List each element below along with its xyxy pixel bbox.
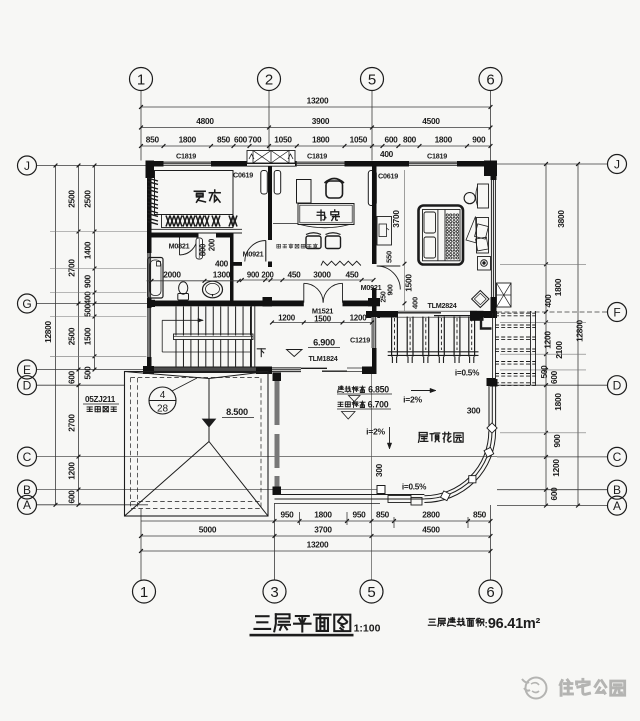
svg-text:M0921: M0921	[361, 283, 382, 292]
svg-text:950: 950	[352, 510, 366, 520]
svg-text:5000: 5000	[199, 525, 217, 535]
svg-text:13200: 13200	[307, 96, 329, 106]
svg-text:C: C	[23, 450, 32, 464]
svg-text:12800: 12800	[43, 320, 53, 342]
svg-text:TLM1824: TLM1824	[308, 354, 337, 363]
svg-text:400: 400	[215, 259, 229, 269]
svg-text:C1819: C1819	[307, 152, 327, 161]
svg-text:600: 600	[67, 490, 77, 504]
svg-text:600: 600	[67, 370, 77, 384]
svg-text:500: 500	[83, 366, 93, 380]
svg-text:2800: 2800	[422, 510, 440, 520]
svg-text:1300: 1300	[213, 270, 231, 280]
svg-text:3700: 3700	[391, 210, 401, 228]
svg-text:1: 1	[137, 71, 145, 88]
svg-text:300: 300	[467, 406, 481, 416]
svg-text:400: 400	[411, 297, 420, 309]
svg-text:5: 5	[367, 584, 375, 601]
svg-text:12800: 12800	[575, 319, 585, 341]
svg-text:M0821: M0821	[169, 242, 190, 251]
svg-text:1: 1	[140, 584, 148, 601]
svg-text:800: 800	[199, 243, 208, 256]
svg-text:05ZJ211: 05ZJ211	[85, 395, 116, 404]
svg-text:300: 300	[375, 463, 384, 477]
svg-text:C0619: C0619	[233, 171, 253, 180]
svg-text:900: 900	[247, 271, 260, 280]
svg-text:4500: 4500	[422, 116, 440, 126]
svg-text:900: 900	[552, 434, 562, 448]
svg-text:3800: 3800	[556, 210, 566, 228]
svg-text:13200: 13200	[307, 540, 329, 550]
svg-text:TLM2824: TLM2824	[427, 301, 456, 310]
svg-text:400: 400	[380, 149, 394, 159]
svg-text:550: 550	[385, 251, 394, 263]
svg-text:950: 950	[280, 510, 294, 520]
svg-text:700: 700	[248, 135, 262, 145]
svg-text:1800: 1800	[553, 278, 563, 296]
svg-text:M0921: M0921	[243, 250, 264, 259]
svg-text:500: 500	[83, 303, 93, 317]
svg-text:850: 850	[473, 510, 487, 520]
svg-text:1200: 1200	[67, 462, 77, 480]
svg-text:1500: 1500	[314, 314, 332, 323]
svg-text:C1819: C1819	[176, 152, 196, 161]
svg-text:J: J	[24, 159, 30, 173]
svg-text:3700: 3700	[314, 525, 332, 535]
svg-text:1500: 1500	[83, 327, 93, 345]
svg-text:250: 250	[381, 291, 388, 302]
svg-text:C0619: C0619	[378, 172, 398, 181]
svg-text:i=0.5%: i=0.5%	[455, 369, 480, 378]
svg-text:2500: 2500	[83, 190, 93, 208]
svg-text:i=2%: i=2%	[366, 427, 385, 437]
svg-text:2700: 2700	[67, 414, 77, 432]
svg-text:2000: 2000	[163, 270, 181, 280]
svg-text:C: C	[613, 450, 622, 464]
svg-text:1500: 1500	[404, 274, 414, 292]
svg-text:200: 200	[261, 271, 274, 280]
svg-text:G: G	[22, 297, 31, 311]
svg-text:F: F	[613, 305, 620, 319]
svg-text:1800: 1800	[179, 135, 197, 145]
svg-text:1050: 1050	[274, 135, 292, 145]
svg-text:450: 450	[287, 270, 301, 280]
svg-text:D: D	[23, 379, 32, 393]
svg-text:6: 6	[486, 584, 494, 601]
svg-text:1800: 1800	[312, 135, 330, 145]
svg-text:3900: 3900	[312, 116, 330, 126]
svg-text:200: 200	[208, 238, 217, 251]
svg-text:C1219: C1219	[350, 336, 370, 345]
svg-text:4800: 4800	[196, 116, 214, 126]
svg-text:600: 600	[549, 370, 559, 384]
svg-text:4: 4	[160, 390, 166, 401]
svg-text:1:100: 1:100	[354, 623, 381, 635]
svg-text:1800: 1800	[553, 393, 563, 411]
svg-text:6.850: 6.850	[368, 384, 389, 394]
svg-text:96.41m²: 96.41m²	[488, 616, 541, 632]
svg-text:28: 28	[157, 404, 169, 415]
svg-text:900: 900	[83, 274, 93, 288]
svg-text:2100: 2100	[554, 341, 564, 359]
svg-text:8.500: 8.500	[226, 407, 248, 417]
svg-text:B: B	[613, 483, 621, 497]
svg-text:400: 400	[543, 294, 553, 308]
svg-text:E: E	[23, 363, 31, 377]
svg-text:3: 3	[270, 584, 278, 601]
svg-text:A: A	[23, 498, 31, 512]
svg-text:6.700: 6.700	[368, 399, 389, 409]
svg-text:J: J	[614, 157, 620, 171]
svg-text:3000: 3000	[313, 270, 331, 280]
svg-text:1800: 1800	[314, 510, 332, 520]
svg-text:1400: 1400	[83, 241, 93, 259]
svg-text:2: 2	[265, 71, 273, 88]
svg-text:1200: 1200	[551, 459, 561, 477]
svg-text:450: 450	[345, 270, 359, 280]
svg-text:900: 900	[472, 135, 486, 145]
svg-text:1200: 1200	[543, 331, 553, 349]
svg-text:6: 6	[486, 71, 494, 88]
svg-text:4500: 4500	[422, 525, 440, 535]
svg-text:1050: 1050	[350, 135, 368, 145]
svg-text:2700: 2700	[67, 259, 77, 277]
svg-text:A: A	[613, 499, 621, 513]
svg-text:850: 850	[376, 510, 390, 520]
svg-text:1200: 1200	[278, 314, 296, 323]
svg-text:600: 600	[384, 135, 398, 145]
svg-text:5: 5	[368, 71, 376, 88]
svg-text:2500: 2500	[67, 190, 77, 208]
svg-text:800: 800	[403, 135, 417, 145]
svg-text:i=2%: i=2%	[403, 395, 422, 405]
svg-text:400: 400	[83, 291, 93, 305]
svg-text:600: 600	[549, 487, 559, 501]
svg-text:C1819: C1819	[427, 152, 447, 161]
svg-text:D: D	[613, 379, 622, 393]
svg-text:2500: 2500	[67, 327, 77, 345]
svg-text:i=0.5%: i=0.5%	[402, 483, 427, 492]
svg-text:6.900: 6.900	[313, 338, 335, 348]
svg-text:850: 850	[146, 135, 160, 145]
svg-text:600: 600	[234, 135, 248, 145]
svg-text:900: 900	[388, 284, 395, 295]
svg-text:1200: 1200	[350, 314, 368, 323]
svg-text:1800: 1800	[435, 135, 453, 145]
svg-text:850: 850	[217, 135, 231, 145]
svg-text:500: 500	[539, 365, 549, 379]
